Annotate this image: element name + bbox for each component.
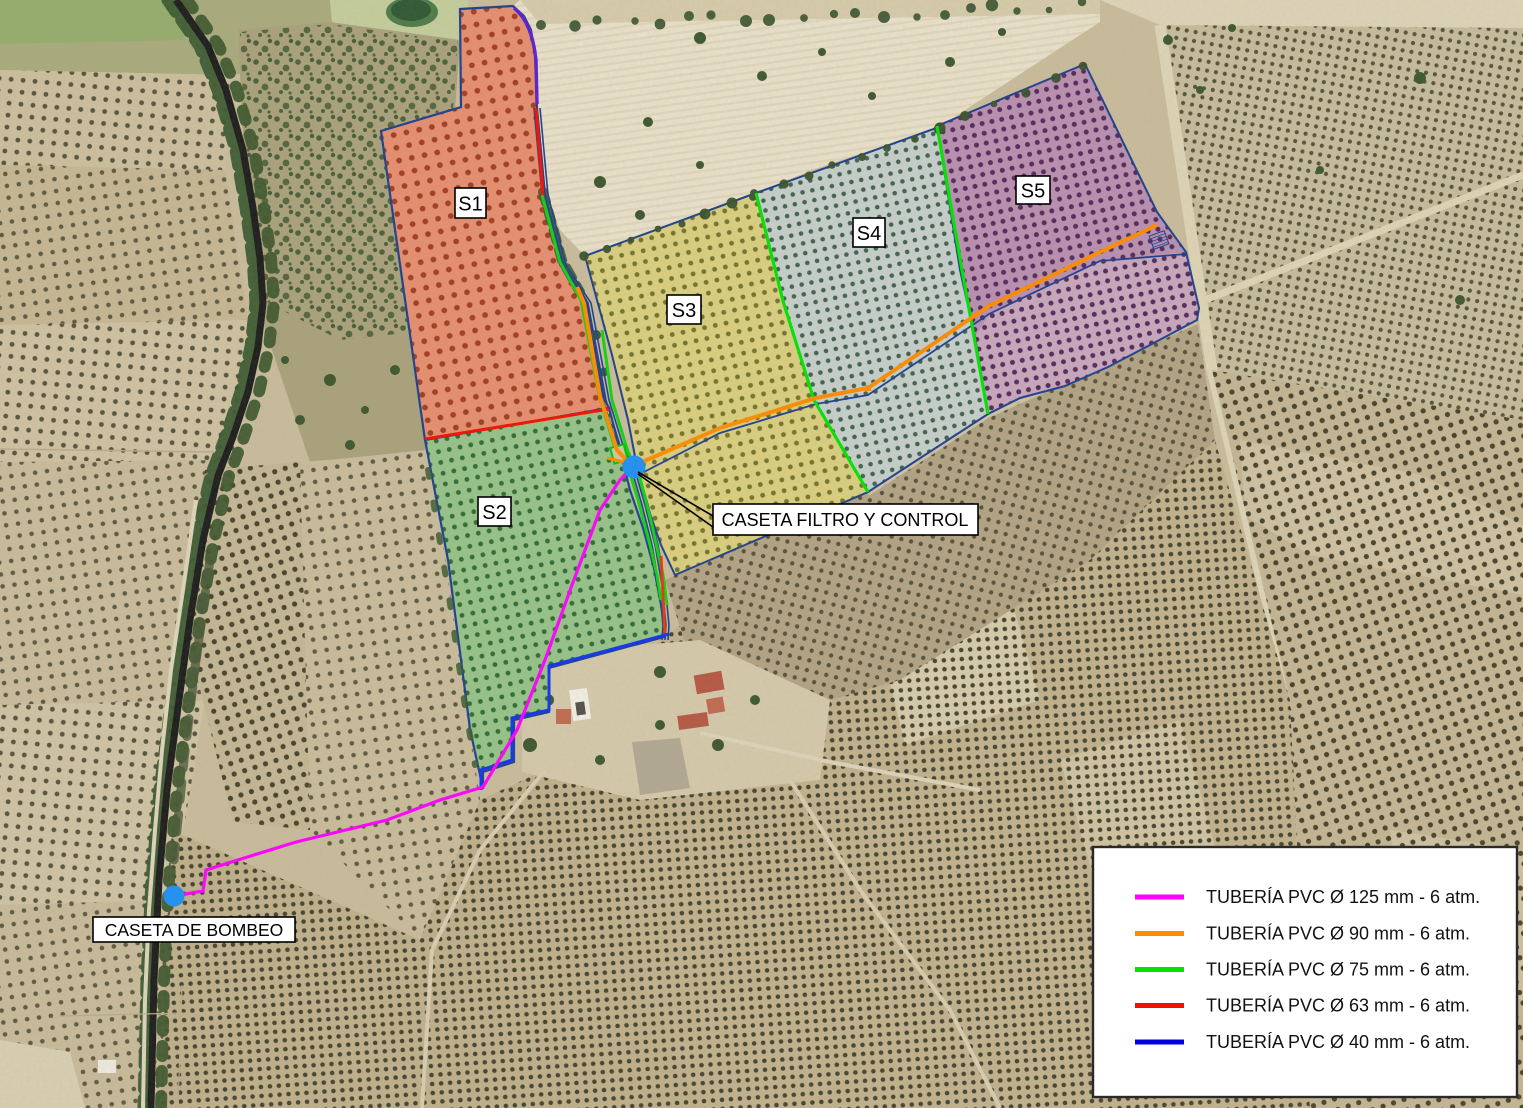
svg-text:CASETA DE BOMBEO: CASETA DE BOMBEO (105, 920, 284, 940)
svg-text:S2: S2 (482, 502, 506, 524)
svg-text:TUBERÍA PVC Ø 90 mm - 6 atm.: TUBERÍA PVC Ø 90 mm - 6 atm. (1206, 924, 1470, 944)
svg-text:TUBERÍA PVC Ø 63 mm - 6 atm.: TUBERÍA PVC Ø 63 mm - 6 atm. (1206, 996, 1470, 1016)
svg-text:TUBERÍA PVC Ø 125 mm - 6 atm.: TUBERÍA PVC Ø 125 mm - 6 atm. (1206, 887, 1480, 907)
svg-text:S5: S5 (1021, 181, 1045, 203)
svg-text:TUBERÍA PVC Ø 75 mm - 6 atm.: TUBERÍA PVC Ø 75 mm - 6 atm. (1206, 960, 1470, 980)
svg-text:S1: S1 (458, 194, 482, 216)
svg-text:S4: S4 (857, 223, 881, 245)
svg-text:CASETA FILTRO Y CONTROL: CASETA FILTRO Y CONTROL (722, 510, 969, 530)
svg-text:S3: S3 (672, 300, 696, 322)
svg-text:TUBERÍA PVC Ø 40 mm - 6 atm.: TUBERÍA PVC Ø 40 mm - 6 atm. (1206, 1032, 1470, 1052)
